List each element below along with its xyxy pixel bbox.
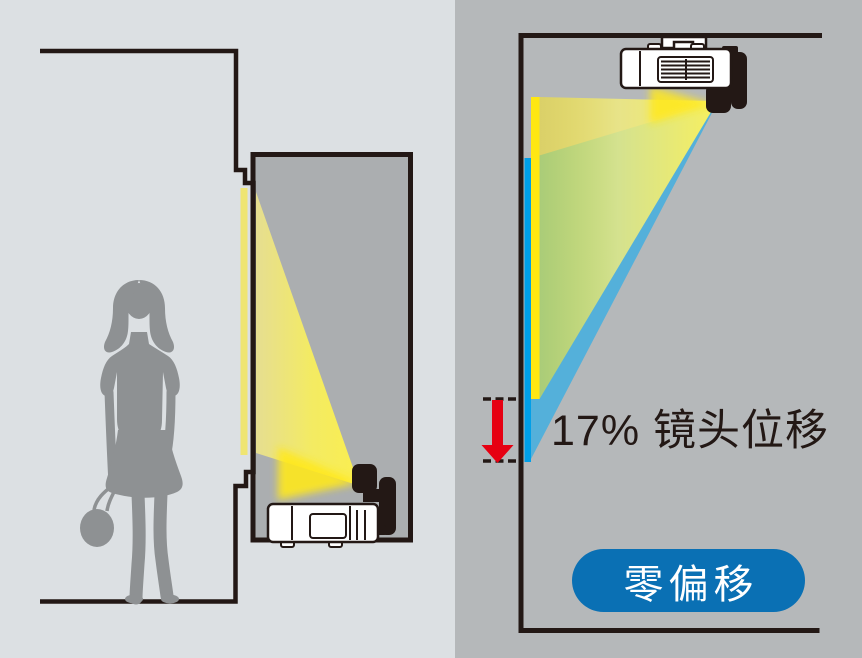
projected-image-strip-left bbox=[241, 188, 248, 455]
left-scene bbox=[0, 0, 455, 658]
handbag bbox=[80, 509, 114, 547]
zero-offset-badge: 零偏移 bbox=[572, 549, 805, 612]
zero-offset-image-strip bbox=[525, 158, 532, 462]
lens-shift-label: 17% 镜头位移 bbox=[551, 408, 831, 454]
lens-shift-diagram: 17% 镜头位移 零偏移 bbox=[0, 0, 862, 658]
vent-grille bbox=[658, 57, 713, 82]
shifted-image-strip bbox=[531, 97, 540, 399]
floor-projector bbox=[268, 504, 378, 547]
projector-body-left bbox=[268, 504, 378, 542]
ceiling-projector bbox=[621, 44, 731, 88]
